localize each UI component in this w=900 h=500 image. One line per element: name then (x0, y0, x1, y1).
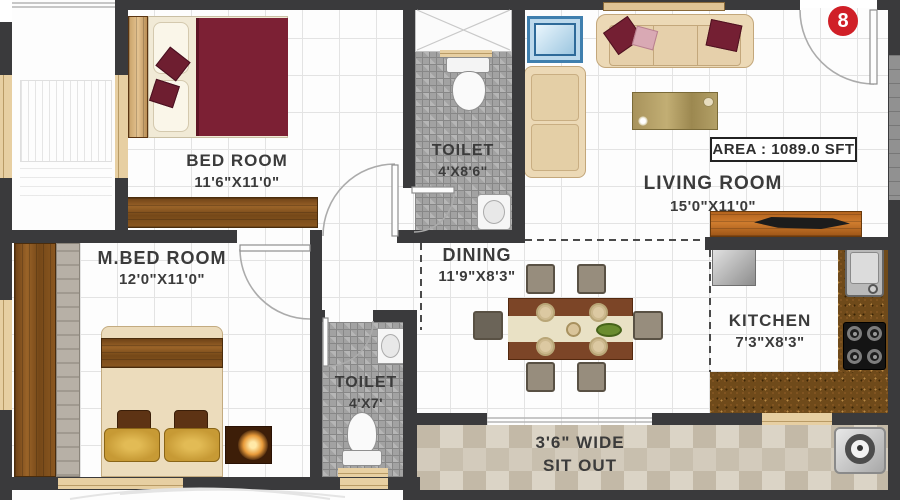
kitchen-sink-basin (850, 252, 879, 284)
stove-burner (867, 326, 882, 341)
sink-faucet (868, 284, 878, 294)
washbasin-bowl (483, 200, 505, 224)
dining-pot (566, 322, 581, 337)
dining-chair (577, 264, 606, 294)
floor-plan: 8 AREA : 1089.0 SFT (0, 0, 900, 500)
room-label-sitout: 3'6" WIDE SIT OUT (535, 432, 624, 478)
room-dims: 12'0"X11'0" (98, 270, 227, 290)
shower-area (415, 8, 512, 52)
dining-plate (536, 337, 555, 356)
wc-toilet (452, 71, 486, 111)
dining-chair (526, 362, 555, 392)
wall (397, 230, 525, 243)
wall (403, 310, 417, 500)
wall (403, 413, 487, 425)
room-label-bedroom: BED ROOM 11'6"X11'0" (186, 150, 288, 193)
bed-headboard (128, 16, 148, 138)
dressing-unit (56, 243, 80, 477)
room-name: DINING (438, 243, 515, 267)
wc-toilet (347, 412, 377, 454)
wall (832, 413, 888, 425)
room-name: TOILET (335, 372, 398, 394)
wall (652, 413, 762, 425)
loveseat-seat (531, 74, 579, 121)
coffee-table-tray (703, 97, 714, 107)
washing-machine-dot (857, 445, 863, 451)
window (0, 75, 12, 178)
room-name: LIVING ROOM (644, 171, 783, 197)
dining-green-dish (596, 323, 622, 337)
dining-plate (589, 303, 608, 322)
room-dims: 11'6"X11'0" (186, 173, 288, 193)
room-label-toilet-bottom: TOILET 4'X7' (335, 372, 398, 412)
bed-pillow-gold (164, 428, 220, 462)
room-name: TOILET (432, 140, 495, 162)
dining-chair (473, 311, 503, 340)
sitout-line2: SIT OUT (535, 455, 624, 478)
wall (403, 0, 415, 188)
wall (705, 237, 888, 250)
kitchen-counter-bottom (710, 372, 888, 413)
window (115, 75, 128, 178)
side-table-glass-inner (534, 23, 576, 56)
room-label-kitchen: KITCHEN 7'3"X8'3" (729, 310, 812, 353)
loveseat-seat (531, 124, 579, 171)
sitout-line1: 3'6" WIDE (535, 432, 624, 455)
dining-chair (526, 264, 555, 294)
room-dims: 4'X7' (335, 394, 398, 413)
area-box: AREA : 1089.0 SFT (710, 137, 857, 162)
window (762, 413, 832, 425)
area-label: AREA : 1089.0 SFT (712, 141, 854, 158)
room-dims: 4'X8'6" (432, 162, 495, 181)
bed-blanket (196, 18, 288, 136)
master-bed-runner (101, 338, 223, 368)
wall (403, 490, 900, 500)
stove-burner (867, 349, 882, 364)
room-label-toilet-top: TOILET 4'X8'6" (432, 140, 495, 180)
wall (373, 310, 405, 322)
room-label-dining: DINING 11'9"X8'3" (438, 243, 515, 288)
window-sliding (889, 55, 900, 200)
toilet-threshold (338, 468, 388, 477)
balcony-railing-sketch-lines (20, 162, 112, 196)
bedroom-wardrobe (126, 197, 318, 228)
wc-tank (342, 450, 382, 466)
dining-chair (633, 311, 663, 340)
stove-burner (847, 349, 862, 364)
wall (512, 0, 525, 240)
room-dims: 15'0"X11'0" (644, 197, 783, 217)
stove-burner (847, 326, 862, 341)
bed-pillow-gold (104, 428, 160, 462)
dining-plate (589, 337, 608, 356)
dining-chair (577, 362, 606, 392)
shower-threshold (440, 50, 492, 57)
wall (310, 230, 322, 480)
room-name: BED ROOM (186, 150, 288, 173)
window (340, 478, 388, 489)
console-shelf (603, 2, 725, 11)
unit-number-badge: 8 (828, 6, 858, 36)
wall (322, 310, 325, 322)
dining-plate (536, 303, 555, 322)
fridge (712, 244, 756, 286)
room-name: KITCHEN (729, 310, 812, 333)
room-dims: 11'9"X8'3" (438, 267, 515, 287)
sitout-floor (417, 425, 888, 490)
coffee-table-flower (638, 116, 648, 126)
unit-number: 8 (837, 10, 848, 32)
room-label-master-bedroom: M.BED ROOM 12'0"X11'0" (98, 246, 227, 291)
wall (0, 230, 237, 243)
table-lamp-icon (238, 430, 268, 460)
balcony-railing-sketch (20, 80, 112, 162)
bottom-strip (0, 490, 403, 500)
washbasin-bowl (381, 334, 400, 358)
window (0, 300, 12, 410)
room-label-living: LIVING ROOM 15'0"X11'0" (644, 171, 783, 217)
room-dims: 7'3"X8'3" (729, 333, 812, 353)
master-wardrobe (14, 243, 56, 477)
room-name: M.BED ROOM (98, 246, 227, 270)
window (58, 478, 183, 489)
